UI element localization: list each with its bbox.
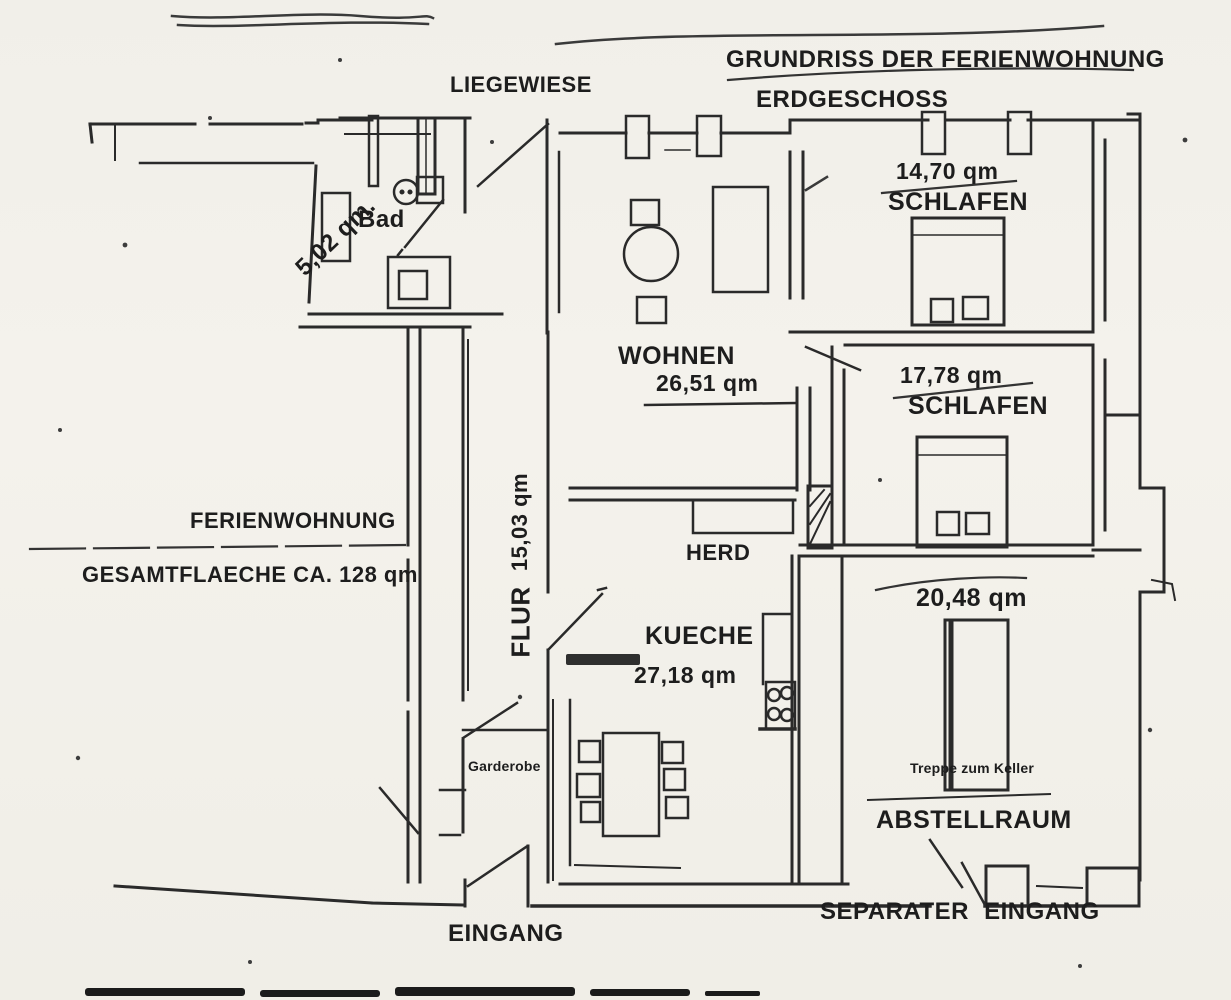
- floorplan-page: GRUNDRISS DER FERIENWOHNUNG ERDGESCHOSS …: [0, 0, 1231, 1000]
- ferienwohnung-label: FERIENWOHNUNG: [190, 508, 396, 534]
- eingang-label: EINGANG: [448, 920, 564, 948]
- abstellraum-label: ABSTELLRAUM: [876, 806, 1072, 835]
- schlafen1-area-label: 14,70 qm: [896, 158, 998, 185]
- treppe-zum-keller-label: Treppe zum Keller: [910, 760, 1034, 776]
- bed-icon-schlafen2: [917, 437, 1007, 547]
- schlafen1-label: SCHLAFEN: [888, 188, 1028, 217]
- abstellraum-area-label: 20,48 qm: [916, 584, 1027, 613]
- wohnen-area-label: 26,51 qm: [656, 370, 758, 397]
- separater-eingang-label: SEPARATER EINGANG: [820, 898, 1100, 926]
- shower-icon: [388, 257, 450, 308]
- gesamtflaeche-label: GESAMTFLAECHE CA. 128 qm: [82, 562, 418, 588]
- cooktop-icon: [760, 682, 795, 729]
- flur-area-label: 15,03 qm: [507, 473, 533, 571]
- schlafen2-area-label: 17,78 qm: [900, 362, 1002, 389]
- dining-table-icon: [577, 733, 688, 836]
- wohnen-label: WOHNEN: [618, 342, 735, 371]
- shaft-hatching: [810, 490, 830, 544]
- kueche-label: KUECHE: [645, 622, 754, 651]
- liegewiese-label: LIEGEWIESE: [450, 72, 592, 98]
- kueche-area-label: 27,18 qm: [634, 662, 736, 689]
- garderobe-label: Garderobe: [468, 758, 541, 774]
- sitting-area-icon: [624, 187, 768, 323]
- page-subtitle: ERDGESCHOSS: [756, 86, 948, 114]
- ink-smudge: [566, 654, 640, 665]
- stove-counter-icon: [693, 500, 793, 533]
- scan-edge-band: [85, 987, 760, 997]
- flur-label: FLUR: [506, 586, 537, 657]
- page-title: GRUNDRISS DER FERIENWOHNUNG: [726, 46, 1165, 74]
- floorplan-drawing: [0, 0, 1231, 1000]
- herd-label: HERD: [686, 540, 750, 566]
- schlafen2-label: SCHLAFEN: [908, 392, 1048, 421]
- bed-icon-schlafen1: [912, 218, 1004, 325]
